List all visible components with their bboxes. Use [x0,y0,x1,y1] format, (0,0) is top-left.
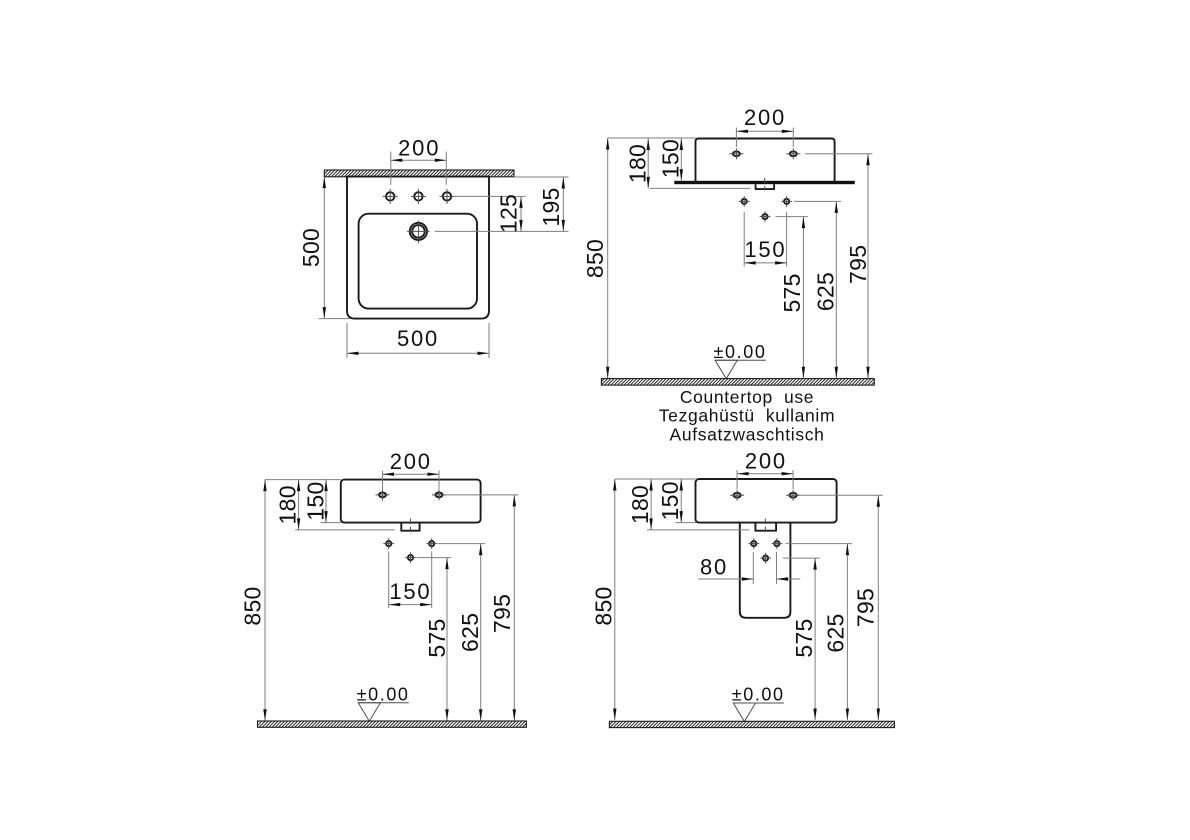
svg-text:Aufsatzwaschtisch: Aufsatzwaschtisch [670,425,825,445]
svg-text:80: 80 [700,555,728,580]
svg-text:200: 200 [744,105,786,130]
svg-text:575: 575 [424,618,450,657]
svg-text:150: 150 [657,481,683,520]
svg-text:±0.00: ±0.00 [714,342,767,362]
svg-text:Countertop use: Countertop use [680,387,814,407]
svg-text:795: 795 [489,594,515,633]
svg-text:±0.00: ±0.00 [732,685,785,705]
svg-text:850: 850 [240,586,266,625]
svg-text:150: 150 [744,237,786,262]
svg-text:625: 625 [457,613,483,652]
svg-text:625: 625 [822,613,848,652]
svg-text:575: 575 [779,273,805,312]
svg-text:150: 150 [389,579,431,604]
svg-text:850: 850 [582,239,608,278]
svg-text:795: 795 [853,588,879,627]
svg-text:575: 575 [791,618,817,657]
svg-text:125: 125 [495,194,521,233]
svg-text:195: 195 [538,187,564,226]
svg-text:500: 500 [298,228,324,267]
svg-text:180: 180 [625,144,651,183]
svg-text:150: 150 [658,139,684,178]
svg-text:850: 850 [591,586,617,625]
svg-text:625: 625 [812,272,838,311]
svg-text:200: 200 [745,449,787,474]
svg-text:200: 200 [398,136,440,161]
svg-text:180: 180 [274,485,300,524]
svg-text:500: 500 [397,326,439,351]
svg-text:Tezgahüstü kullanim: Tezgahüstü kullanim [659,405,835,425]
svg-text:180: 180 [627,485,653,524]
svg-text:200: 200 [390,449,432,474]
svg-text:±0.00: ±0.00 [357,684,410,704]
svg-text:150: 150 [302,481,328,520]
svg-text:795: 795 [845,245,871,284]
